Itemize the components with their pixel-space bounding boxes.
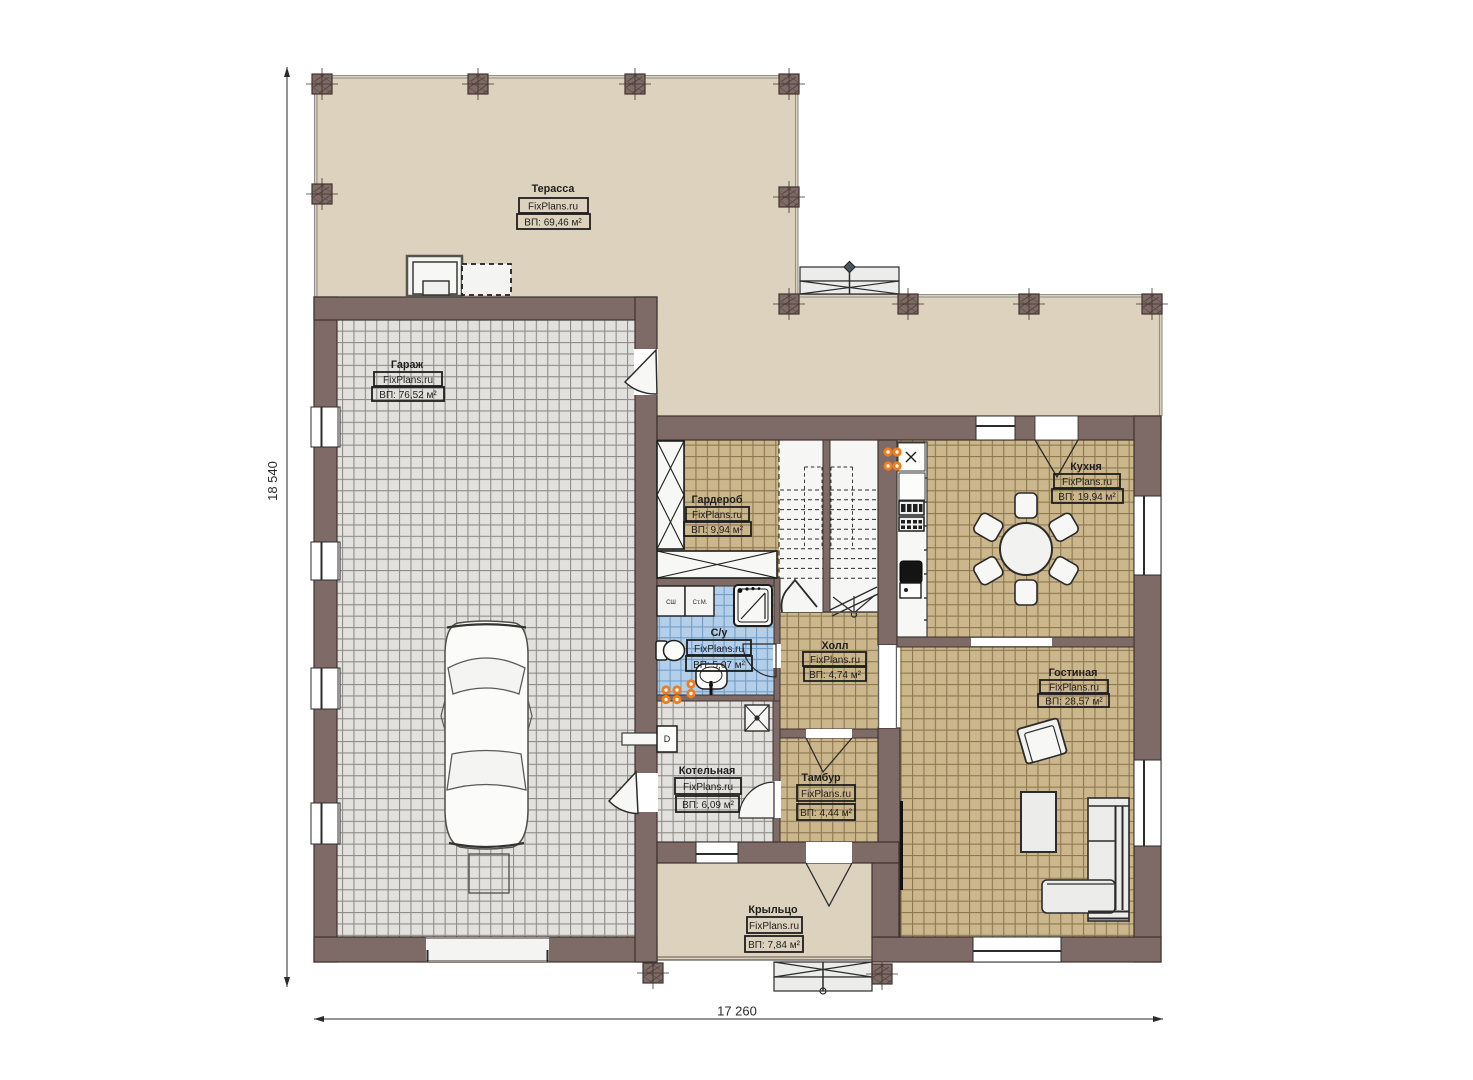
svg-text:Гардероб: Гардероб xyxy=(691,494,742,506)
svg-text:Гостиная: Гостиная xyxy=(1049,667,1098,679)
svg-text:Крыльцо: Крыльцо xyxy=(748,904,798,916)
svg-text:FixPlans.ru: FixPlans.ru xyxy=(801,789,851,800)
svg-text:17 260: 17 260 xyxy=(717,1004,757,1019)
svg-text:Холл: Холл xyxy=(821,640,848,652)
svg-text:ВП: 7,84 м²: ВП: 7,84 м² xyxy=(748,940,801,951)
svg-text:Тамбур: Тамбур xyxy=(801,772,841,784)
svg-text:СШ: СШ xyxy=(666,600,676,606)
svg-text:Ст.М.: Ст.М. xyxy=(693,600,708,606)
svg-text:ВП: 9,94 м²: ВП: 9,94 м² xyxy=(691,525,744,536)
svg-text:ВП: 5,07 м²: ВП: 5,07 м² xyxy=(693,660,746,671)
svg-text:ВП: 19,94 м²: ВП: 19,94 м² xyxy=(1058,492,1116,503)
svg-text:FixPlans.ru: FixPlans.ru xyxy=(528,202,578,213)
svg-text:Гараж: Гараж xyxy=(391,359,424,371)
svg-text:FixPlans.ru: FixPlans.ru xyxy=(1049,683,1099,694)
svg-text:ВП: 76,52 м²: ВП: 76,52 м² xyxy=(379,390,437,401)
svg-text:FixPlans.ru: FixPlans.ru xyxy=(683,782,733,793)
svg-text:FixPlans.ru: FixPlans.ru xyxy=(810,655,860,666)
svg-text:FixPlans.ru: FixPlans.ru xyxy=(383,375,433,386)
svg-text:ВП: 4,44 м²: ВП: 4,44 м² xyxy=(800,808,853,819)
svg-text:ВП: 28,57 м²: ВП: 28,57 м² xyxy=(1045,697,1103,708)
svg-text:FixPlans.ru: FixPlans.ru xyxy=(1062,477,1112,488)
svg-text:ВП: 69,46 м²: ВП: 69,46 м² xyxy=(524,218,582,229)
svg-text:Терасса: Терасса xyxy=(532,183,576,195)
svg-text:18 540: 18 540 xyxy=(265,461,280,501)
svg-text:ВП: 4,74 м²: ВП: 4,74 м² xyxy=(809,670,862,681)
svg-text:ВП: 6,09 м²: ВП: 6,09 м² xyxy=(682,800,735,811)
svg-text:Котельная: Котельная xyxy=(679,765,736,777)
svg-text:FixPlans.ru: FixPlans.ru xyxy=(694,644,744,655)
svg-text:Кухня: Кухня xyxy=(1070,461,1102,473)
svg-text:С/у: С/у xyxy=(711,627,728,639)
svg-text:FixPlans.ru: FixPlans.ru xyxy=(749,921,799,932)
svg-text:D: D xyxy=(664,734,671,744)
svg-text:FixPlans.ru: FixPlans.ru xyxy=(692,510,742,521)
